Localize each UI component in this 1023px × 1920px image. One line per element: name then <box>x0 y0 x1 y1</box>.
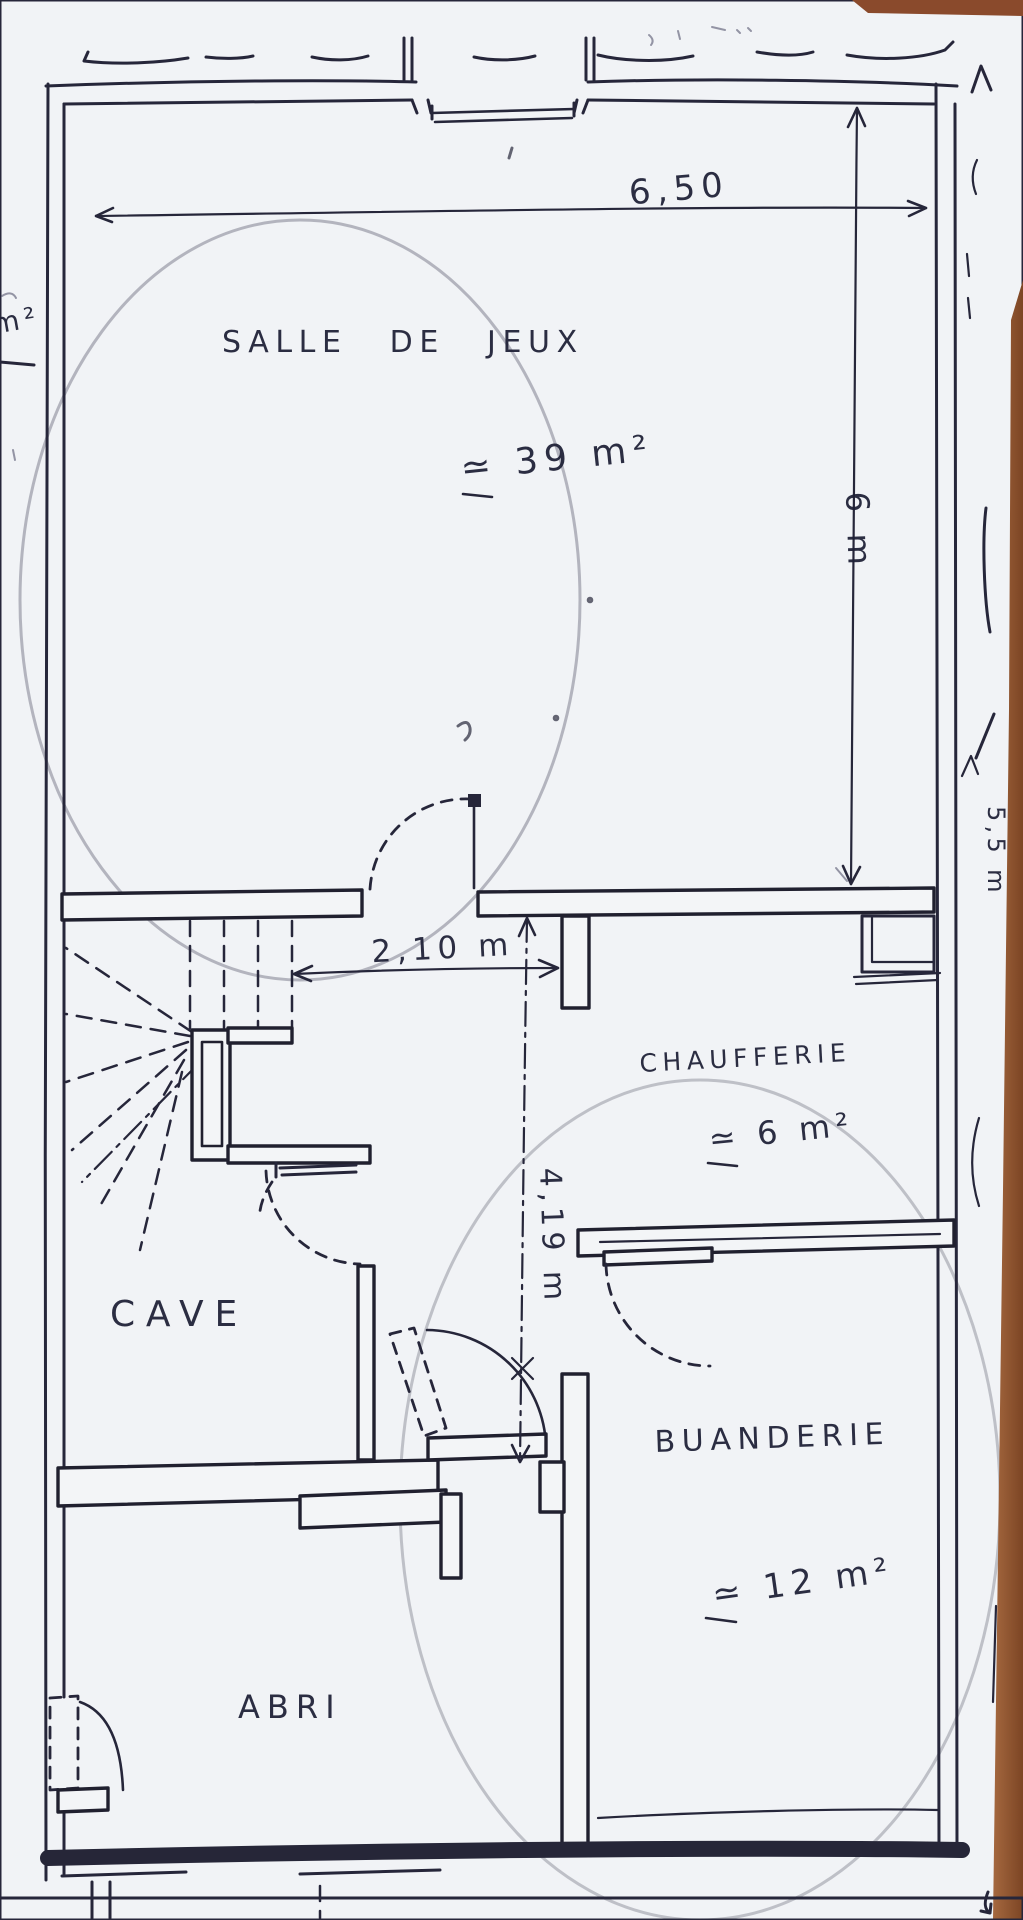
buanderie-floor-line <box>598 1809 938 1818</box>
wall-stub-hallway <box>562 916 589 1008</box>
corridor-bottom-door <box>390 1328 546 1460</box>
stair-winder-fan <box>66 948 200 1250</box>
abri-door <box>50 1696 123 1812</box>
window-jamb-right <box>586 38 594 80</box>
dim-hall-width-label: 2,10 m <box>371 927 515 970</box>
bottom-right-arrow <box>981 1892 991 1913</box>
buanderie-door-sill <box>604 1248 712 1265</box>
room-label-buanderie: BUANDERIE <box>654 1417 891 1460</box>
interior-wall-cave-bottom <box>58 1460 461 1578</box>
window-jamb-left <box>404 38 412 80</box>
chaufferie-flue <box>854 916 940 984</box>
room-label-cave: CAVE <box>110 1294 248 1335</box>
interior-wall-chaufferie <box>578 1220 954 1366</box>
cave-door-arc <box>266 1171 360 1264</box>
cave-door-jamb <box>358 1266 374 1460</box>
top-boundary-dashed-line <box>84 27 953 63</box>
dimensions: 6,50 6 m 2,10 m 4,19 m <box>96 108 926 1462</box>
left-margin-fragment: m² <box>0 293 43 460</box>
cave-door <box>260 1163 360 1264</box>
dim-hall-depth-label: 4,19 m <box>532 1167 572 1306</box>
wall-segment-left <box>62 890 362 920</box>
room-label-chaufferie: CHAUFFERIE <box>639 1038 852 1078</box>
svg-text:m²: m² <box>0 300 43 341</box>
room-area-chaufferie: ≃ 6 m² <box>707 1105 856 1158</box>
room-labels: SALLE DE JEUX ≃ 39 m² CHAUFFERIE ≃ 6 m² … <box>110 325 896 1726</box>
floor-plan-drawing: 6,50 6 m 2,10 m 4,19 m SALLE DE JEUX ≃ 3… <box>0 0 1023 1920</box>
exterior-stub-lines <box>92 1882 110 1918</box>
scanned-floor-plan: 6,50 6 m 2,10 m 4,19 m SALLE DE JEUX ≃ 3… <box>0 0 1023 1920</box>
dim-right-height-label: 6 m <box>838 491 879 571</box>
room-area-salle-de-jeux: ≃ 39 m² <box>459 428 656 489</box>
door-leaf-dashed <box>390 1328 446 1436</box>
room-label-salle-de-jeux: SALLE DE JEUX <box>222 325 584 360</box>
wall-step-notch <box>540 1462 564 1512</box>
window <box>404 38 594 122</box>
abri-door-arc <box>80 1702 123 1790</box>
dim-top-width-label: 6,50 <box>627 165 730 214</box>
dim-top-width: 6,50 <box>96 165 926 222</box>
dim-right-height: 6 m <box>836 108 879 884</box>
abri-door-sill <box>58 1788 108 1812</box>
door-hinge-salle <box>468 794 481 807</box>
buanderie-door-arc <box>606 1264 710 1366</box>
wall-segment-right <box>478 888 934 916</box>
interior-wall-salle <box>62 794 934 1008</box>
stair-core <box>192 1028 370 1163</box>
room-label-abri: ABRI <box>238 1688 342 1726</box>
right-margin-note: 5,5 m <box>982 806 1010 897</box>
abri-passage-jamb <box>441 1494 461 1578</box>
door-arc-salle <box>370 799 471 889</box>
abri-door-leaf-dashed <box>50 1696 78 1790</box>
room-area-buanderie: ≃ 12 m² <box>710 1550 897 1615</box>
staircase <box>66 921 374 1460</box>
